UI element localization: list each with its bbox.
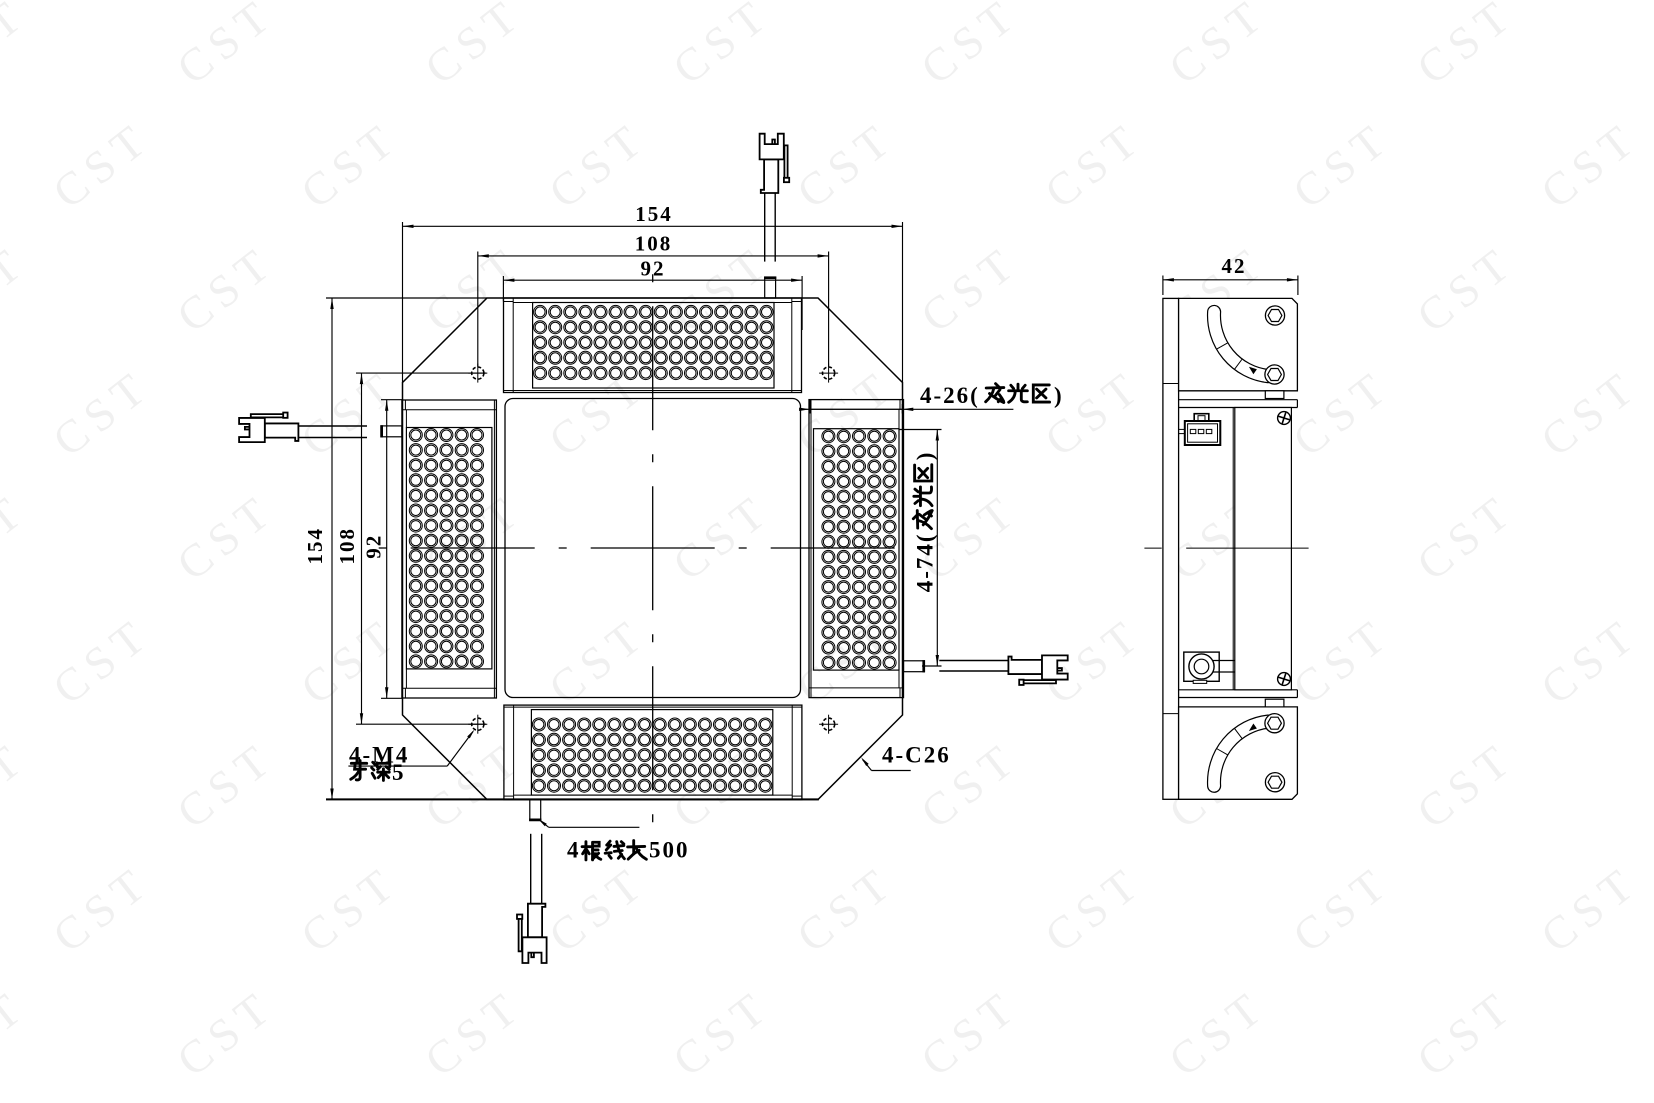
svg-text:CST: CST	[167, 0, 284, 94]
svg-text:CST: CST	[787, 111, 904, 218]
svg-text:CST: CST	[43, 855, 160, 962]
svg-text:CST: CST	[1283, 607, 1400, 714]
svg-text:CST: CST	[1035, 111, 1152, 218]
svg-text:4: 4	[567, 838, 581, 863]
svg-text:CST: CST	[1159, 979, 1276, 1086]
svg-text:CST: CST	[1035, 359, 1152, 466]
svg-text:500: 500	[649, 838, 690, 863]
svg-text:CST: CST	[787, 855, 904, 962]
svg-text:CST: CST	[43, 111, 160, 218]
svg-text:CST: CST	[291, 111, 408, 218]
svg-text:CST: CST	[1035, 855, 1152, 962]
svg-text:CST: CST	[1531, 359, 1648, 466]
svg-text:CST: CST	[663, 979, 780, 1086]
svg-text:CST: CST	[1407, 731, 1524, 838]
svg-text:CST: CST	[539, 855, 656, 962]
svg-text:108: 108	[335, 527, 359, 565]
svg-text:92: 92	[641, 257, 666, 281]
svg-text:CST: CST	[1159, 0, 1276, 94]
svg-text:4-26(: 4-26(	[920, 383, 980, 408]
svg-text:CST: CST	[663, 0, 780, 94]
svg-text:CST: CST	[1283, 359, 1400, 466]
svg-text:CST: CST	[539, 359, 656, 466]
svg-text:CST: CST	[167, 979, 284, 1086]
svg-text:): )	[1054, 383, 1064, 408]
svg-text:CST: CST	[167, 235, 284, 342]
svg-text:): )	[913, 451, 938, 461]
svg-text:CST: CST	[911, 0, 1028, 94]
svg-text:CST: CST	[167, 731, 284, 838]
svg-text:CST: CST	[291, 359, 408, 466]
svg-text:CST: CST	[1407, 979, 1524, 1086]
svg-text:154: 154	[635, 202, 673, 226]
svg-text:CST: CST	[1283, 855, 1400, 962]
svg-text:4-C26: 4-C26	[882, 743, 951, 768]
svg-text:CST: CST	[0, 731, 36, 838]
svg-text:108: 108	[635, 232, 673, 256]
svg-text:CST: CST	[1407, 235, 1524, 342]
svg-text:CST: CST	[415, 235, 532, 342]
svg-text:CST: CST	[1283, 111, 1400, 218]
svg-text:CST: CST	[1531, 607, 1648, 714]
svg-text:CST: CST	[415, 0, 532, 94]
svg-text:CST: CST	[0, 0, 36, 94]
svg-text:CST: CST	[911, 235, 1028, 342]
svg-text:CST: CST	[1531, 855, 1648, 962]
svg-text:5: 5	[392, 760, 406, 785]
svg-text:CST: CST	[1531, 111, 1648, 218]
svg-text:CST: CST	[1407, 483, 1524, 590]
svg-text:CST: CST	[43, 359, 160, 466]
svg-text:CST: CST	[0, 235, 36, 342]
svg-text:4-74(: 4-74(	[913, 532, 938, 592]
svg-text:CST: CST	[787, 359, 904, 466]
svg-text:CST: CST	[291, 855, 408, 962]
svg-text:CST: CST	[663, 483, 780, 590]
svg-text:CST: CST	[43, 607, 160, 714]
svg-text:CST: CST	[167, 483, 284, 590]
svg-text:CST: CST	[415, 979, 532, 1086]
svg-text:92: 92	[361, 534, 385, 559]
svg-text:CST: CST	[415, 731, 532, 838]
svg-text:154: 154	[303, 527, 327, 565]
svg-text:CST: CST	[1407, 0, 1524, 94]
svg-text:42: 42	[1222, 254, 1247, 278]
svg-text:CST: CST	[911, 979, 1028, 1086]
svg-text:CST: CST	[0, 483, 36, 590]
svg-text:CST: CST	[0, 979, 36, 1086]
